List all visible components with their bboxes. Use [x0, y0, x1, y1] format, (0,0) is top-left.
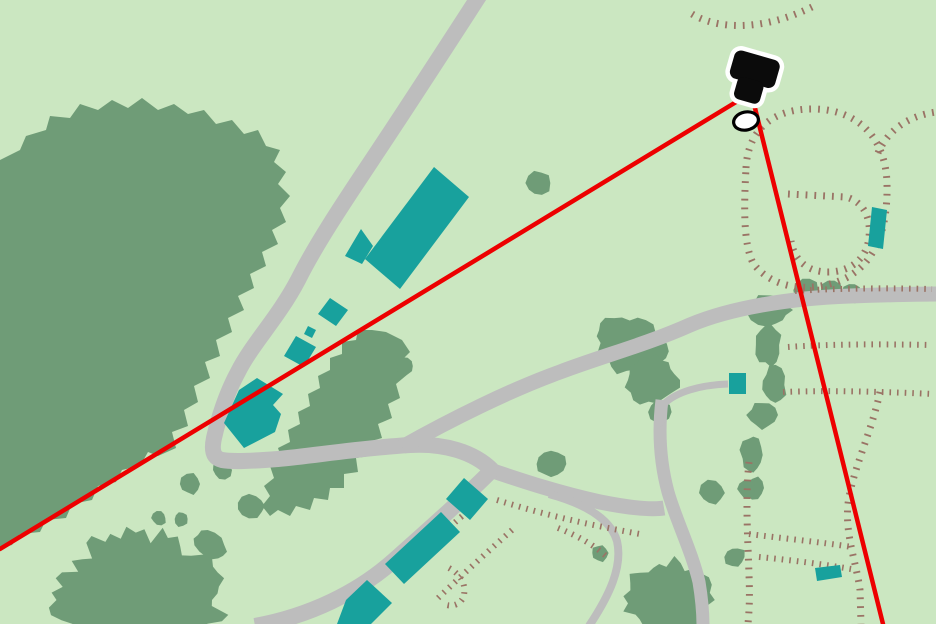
building-square — [729, 373, 746, 394]
map-viewport[interactable] — [0, 0, 936, 624]
map-canvas[interactable] — [0, 0, 936, 624]
